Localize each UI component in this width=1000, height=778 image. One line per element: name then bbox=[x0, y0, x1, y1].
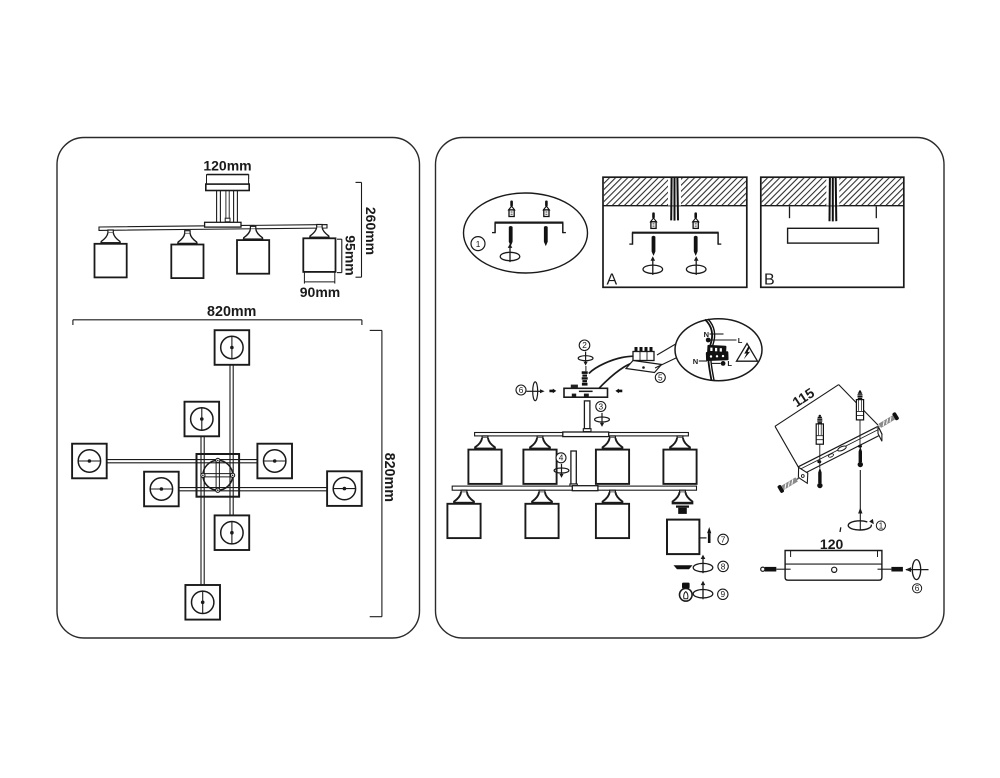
svg-text:90mm: 90mm bbox=[300, 284, 340, 300]
svg-text:820mm: 820mm bbox=[381, 453, 397, 502]
svg-text:8: 8 bbox=[721, 561, 726, 571]
svg-text:5: 5 bbox=[658, 372, 663, 382]
svg-text:1: 1 bbox=[476, 239, 481, 249]
svg-text:820mm: 820mm bbox=[207, 304, 256, 320]
svg-text:120: 120 bbox=[820, 536, 844, 552]
svg-text:L: L bbox=[727, 359, 732, 368]
svg-text:9: 9 bbox=[720, 589, 725, 599]
svg-text:2: 2 bbox=[582, 340, 587, 350]
svg-text:6: 6 bbox=[915, 583, 920, 593]
svg-text:N: N bbox=[704, 330, 709, 339]
svg-text:260mm: 260mm bbox=[363, 207, 379, 255]
svg-text:95mm: 95mm bbox=[343, 235, 359, 275]
svg-text:L: L bbox=[738, 336, 743, 345]
svg-text:1: 1 bbox=[879, 521, 884, 531]
svg-text:N: N bbox=[693, 357, 698, 366]
svg-text:B: B bbox=[764, 272, 775, 289]
svg-text:3: 3 bbox=[598, 401, 603, 411]
svg-text:A: A bbox=[607, 272, 618, 289]
svg-text:4: 4 bbox=[559, 453, 564, 463]
svg-text:7: 7 bbox=[721, 534, 726, 544]
svg-text:6: 6 bbox=[519, 385, 524, 395]
svg-text:120mm: 120mm bbox=[203, 158, 251, 174]
